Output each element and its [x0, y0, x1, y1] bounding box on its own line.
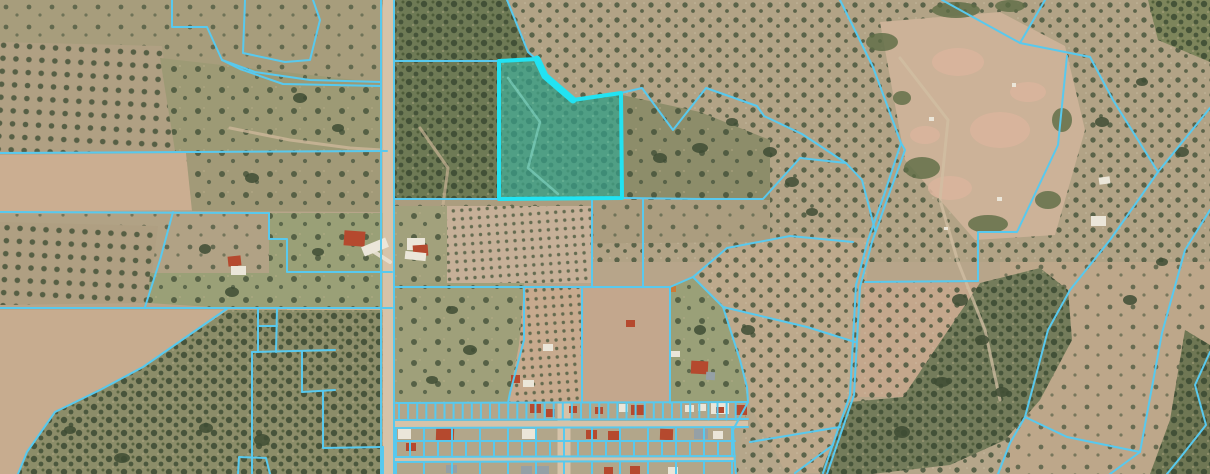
building-red-roof [630, 466, 640, 474]
tree [254, 434, 270, 446]
building-red-roof [608, 431, 620, 441]
tree [806, 208, 818, 216]
building-gray-roof [521, 466, 532, 474]
rock-patch [970, 112, 1030, 148]
building-red-roof [691, 361, 709, 375]
tree [199, 244, 211, 254]
building-gray-roof [706, 372, 715, 380]
region-plowed-field-left [0, 153, 192, 212]
region-texture-grove-left-lower [0, 222, 158, 305]
building-white-roof [543, 344, 553, 351]
region-gray-field [582, 287, 670, 402]
map-viewport[interactable] [0, 0, 1210, 474]
tree [934, 377, 950, 387]
tree [1123, 295, 1137, 305]
building-white-roof [997, 197, 1002, 201]
tree [952, 294, 968, 306]
rock-patch [910, 126, 940, 144]
building-white-roof [523, 380, 534, 387]
region-texture-scrub-mid-left [186, 152, 382, 212]
tree [463, 345, 477, 355]
tree [245, 173, 259, 183]
building-red-roof [660, 429, 673, 440]
tree [785, 177, 799, 187]
rock-patch [932, 48, 984, 76]
region-texture-grass-roadside-lower [395, 283, 524, 403]
building-white-roof [398, 429, 411, 439]
tree [975, 335, 989, 345]
tree [726, 118, 738, 126]
tree [1156, 258, 1168, 266]
tree [694, 325, 706, 335]
tree [199, 423, 213, 433]
region-texture-orchard-north [447, 206, 592, 283]
tree [64, 426, 76, 434]
building-white-roof [522, 429, 535, 439]
building-gray-roof [694, 429, 708, 439]
building-white-roof [929, 117, 934, 121]
tree [1136, 78, 1148, 86]
tree [332, 124, 344, 132]
building-red-roof [228, 255, 242, 266]
building-red-roof [344, 230, 366, 246]
map-canvas[interactable] [0, 0, 1210, 474]
vegetation-clump [932, 2, 980, 18]
building-red-roof [604, 467, 613, 474]
building-red-roof [569, 406, 577, 413]
building-white-roof [944, 227, 948, 230]
tree [763, 147, 777, 157]
vegetation-clump [968, 215, 1008, 233]
vegetation-clump [893, 91, 911, 105]
vegetation-clump [1035, 191, 1061, 209]
building-red-roof [631, 405, 644, 415]
tree [692, 143, 708, 153]
building-red-roof [626, 320, 635, 327]
building-white-roof [1091, 216, 1106, 226]
vegetation-clump [866, 33, 898, 51]
tree [995, 387, 1009, 397]
tree [293, 93, 307, 103]
building-white-roof [671, 351, 680, 357]
cadastral-boundary [394, 427, 748, 428]
tree [312, 248, 324, 256]
building-white-roof [713, 431, 723, 439]
building-white-roof [1012, 83, 1016, 87]
tree [114, 453, 130, 463]
tree [426, 376, 438, 384]
vegetation-clump [904, 157, 940, 179]
building-gray-roof [536, 466, 549, 474]
tree [225, 287, 239, 297]
rock-patch [928, 176, 972, 200]
tree [894, 426, 910, 438]
cadastral-boundary [276, 309, 277, 352]
main-road [383, 0, 394, 474]
cadastral-boundary [323, 447, 383, 448]
tree [446, 306, 458, 314]
region-texture-grove-left-upper [0, 42, 175, 153]
vegetation-clump [995, 0, 1025, 12]
tree [653, 153, 667, 163]
tree [741, 325, 755, 335]
building-white-roof [231, 266, 246, 275]
tree [1095, 117, 1109, 127]
